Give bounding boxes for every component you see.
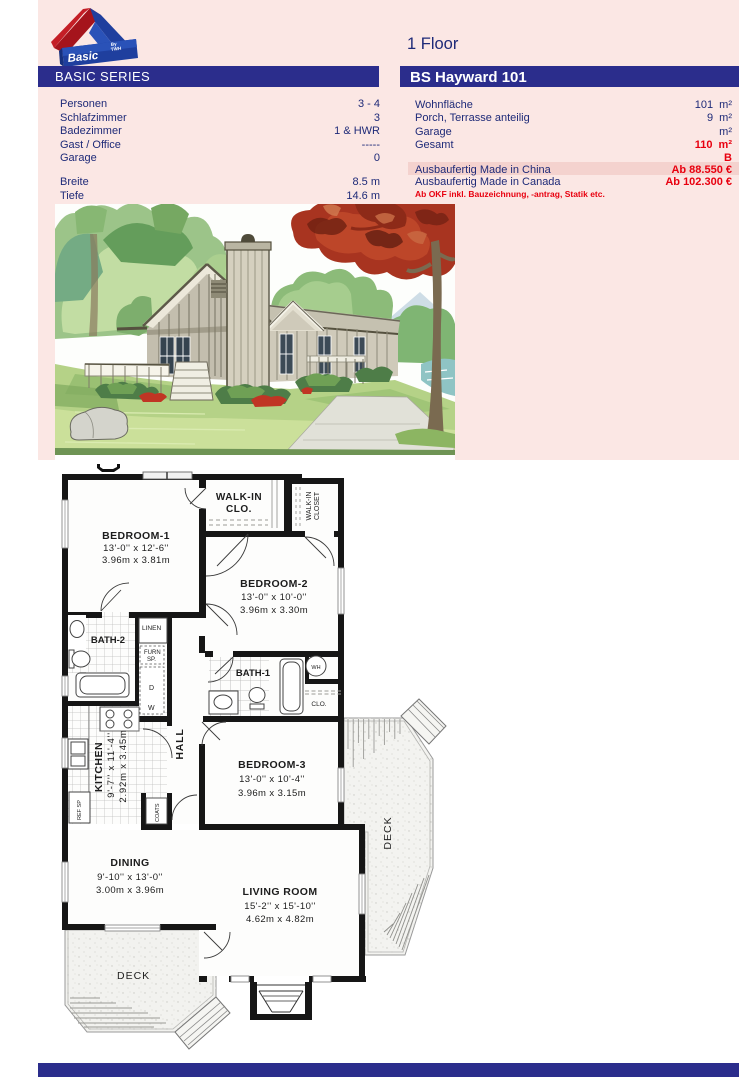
svg-text:BEDROOM-2: BEDROOM-2 (240, 578, 308, 590)
svg-text:15'-2'' x 15'-10'': 15'-2'' x 15'-10'' (244, 901, 315, 912)
svg-text:WALK-IN: WALK-IN (306, 492, 313, 521)
svg-text:KITCHEN: KITCHEN (93, 742, 105, 792)
svg-text:CLOSET: CLOSET (314, 491, 321, 520)
svg-text:W: W (148, 705, 155, 712)
svg-text:DINING: DINING (110, 857, 149, 869)
svg-text:BEDROOM-3: BEDROOM-3 (238, 759, 306, 771)
svg-text:LIVING ROOM: LIVING ROOM (243, 886, 318, 898)
svg-text:3.96m x 3.15m: 3.96m x 3.15m (238, 788, 306, 799)
svg-text:REF SP: REF SP (77, 800, 83, 820)
svg-text:13'-0'' x 12'-6'': 13'-0'' x 12'-6'' (103, 543, 169, 554)
svg-text:3.00m x 3.96m: 3.00m x 3.96m (96, 885, 164, 896)
svg-text:DECK: DECK (382, 816, 394, 849)
svg-text:4.62m x 4.82m: 4.62m x 4.82m (246, 914, 314, 925)
svg-text:9'-7'' x 11'-4'': 9'-7'' x 11'-4'' (106, 732, 117, 798)
svg-text:WALK-IN: WALK-IN (216, 492, 262, 503)
svg-text:COATS: COATS (155, 803, 161, 822)
svg-text:LINEN: LINEN (142, 625, 161, 632)
svg-text:BATH-2: BATH-2 (91, 635, 125, 646)
svg-text:3.96m x 3.81m: 3.96m x 3.81m (102, 555, 170, 566)
svg-text:BATH-1: BATH-1 (236, 668, 271, 679)
svg-text:13'-0'' x 10'-0'': 13'-0'' x 10'-0'' (241, 592, 307, 603)
svg-text:DECK: DECK (117, 970, 150, 982)
svg-text:13'-0'' x 10'-4'': 13'-0'' x 10'-4'' (239, 774, 305, 785)
svg-text:9'-10'' x 13'-0'': 9'-10'' x 13'-0'' (97, 872, 163, 883)
svg-text:BEDROOM-1: BEDROOM-1 (102, 530, 170, 542)
svg-text:SP.: SP. (147, 657, 156, 663)
svg-text:WH: WH (311, 665, 320, 671)
svg-text:CLO.: CLO. (226, 504, 252, 515)
svg-text:2.92m x 3.45m: 2.92m x 3.45m (118, 729, 129, 802)
svg-text:D: D (149, 685, 154, 692)
svg-text:FURN: FURN (144, 650, 161, 656)
svg-text:3.96m x 3.30m: 3.96m x 3.30m (240, 605, 308, 616)
svg-text:HALL: HALL (174, 728, 186, 759)
svg-text:CLO.: CLO. (311, 701, 326, 708)
